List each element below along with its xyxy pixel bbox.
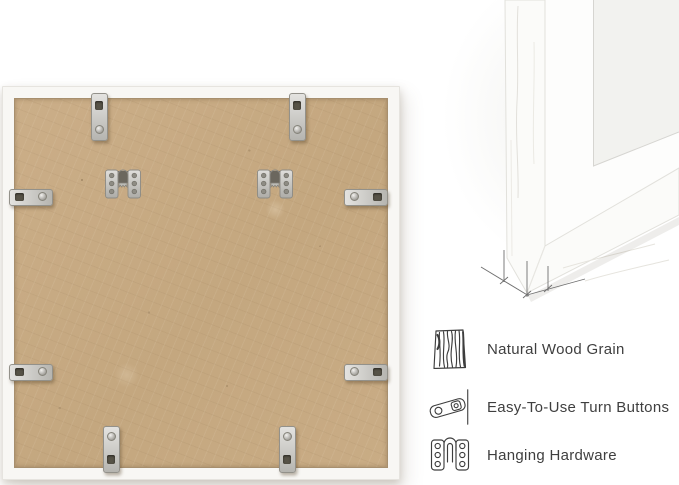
feature-hanging-hardware: Hanging Hardware (427, 435, 679, 475)
turn-button-screw (95, 125, 104, 134)
product-image: 0.7" 0.45" Natural Wood Grain (0, 0, 679, 485)
turn-button (289, 93, 306, 141)
frame-corner-photo: 0.7" 0.45" (430, 0, 679, 310)
turn-button-slot (15, 368, 24, 376)
frame-back-photo (2, 86, 400, 480)
mdf-backing (14, 98, 388, 468)
feature-label: Easy-To-Use Turn Buttons (487, 399, 669, 416)
turn-button-screw (350, 367, 359, 376)
turn-button-screw (38, 192, 47, 201)
turn-button (9, 364, 53, 381)
turn-button (344, 364, 388, 381)
turn-button-screw (283, 432, 292, 441)
turn-button (103, 426, 120, 473)
feature-natural-wood-grain: Natural Wood Grain (427, 329, 679, 369)
turn-button-slot (15, 193, 24, 201)
turn-button-slot (373, 368, 382, 376)
turn-button-screw (293, 125, 302, 134)
turn-button-icon (427, 387, 473, 427)
frame-corner-drawing (440, 0, 679, 310)
turn-button-slot (95, 101, 103, 110)
turn-button (344, 189, 388, 206)
hanging-hardware-bracket (256, 167, 294, 201)
feature-label: Natural Wood Grain (487, 341, 625, 358)
turn-button-slot (373, 193, 382, 201)
turn-button-slot (293, 101, 301, 110)
feature-turn-buttons: Easy-To-Use Turn Buttons (427, 387, 679, 427)
turn-button-slot (107, 455, 115, 464)
feature-label: Hanging Hardware (487, 447, 617, 464)
turn-button-slot (283, 455, 291, 464)
turn-button (9, 189, 53, 206)
turn-button (91, 93, 108, 141)
hanging-hardware-bracket (104, 167, 142, 201)
hanging-hardware-icon (427, 435, 473, 475)
turn-button-screw (38, 367, 47, 376)
turn-button-screw (350, 192, 359, 201)
turn-button (279, 426, 296, 473)
wood-grain-icon (427, 329, 473, 369)
turn-button-screw (107, 432, 116, 441)
